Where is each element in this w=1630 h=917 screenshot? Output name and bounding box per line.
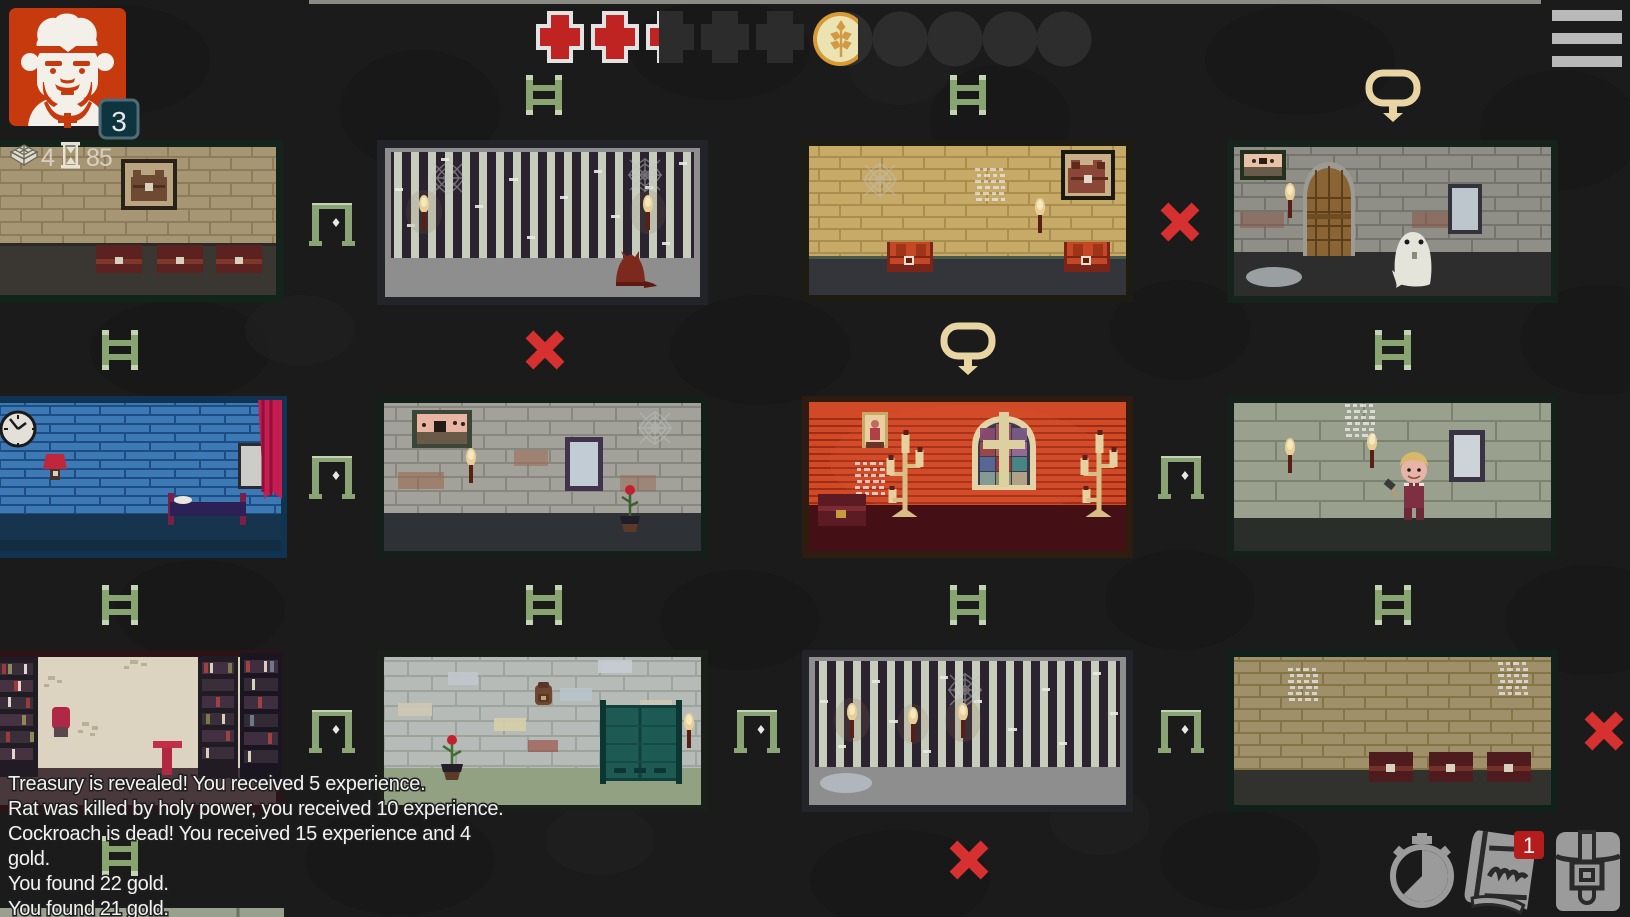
svg-text:Treasury is revealed! You rece: Treasury is revealed! You received 5 exp… [8,773,425,795]
svg-text:4: 4 [41,144,55,172]
svg-text:You found 22 gold.: You found 22 gold. [8,873,169,895]
svg-text:Cockroach is dead! You receive: Cockroach is dead! You received 15 exper… [8,823,471,845]
svg-text:You found 21 gold.: You found 21 gold. [8,898,169,917]
svg-text:Rat was killed by holy power,: Rat was killed by holy power, you receiv… [8,798,503,820]
svg-text:85: 85 [86,144,112,172]
svg-text:gold.: gold. [8,848,50,870]
svg-text:3: 3 [111,106,127,137]
svg-text:1: 1 [1523,833,1535,858]
